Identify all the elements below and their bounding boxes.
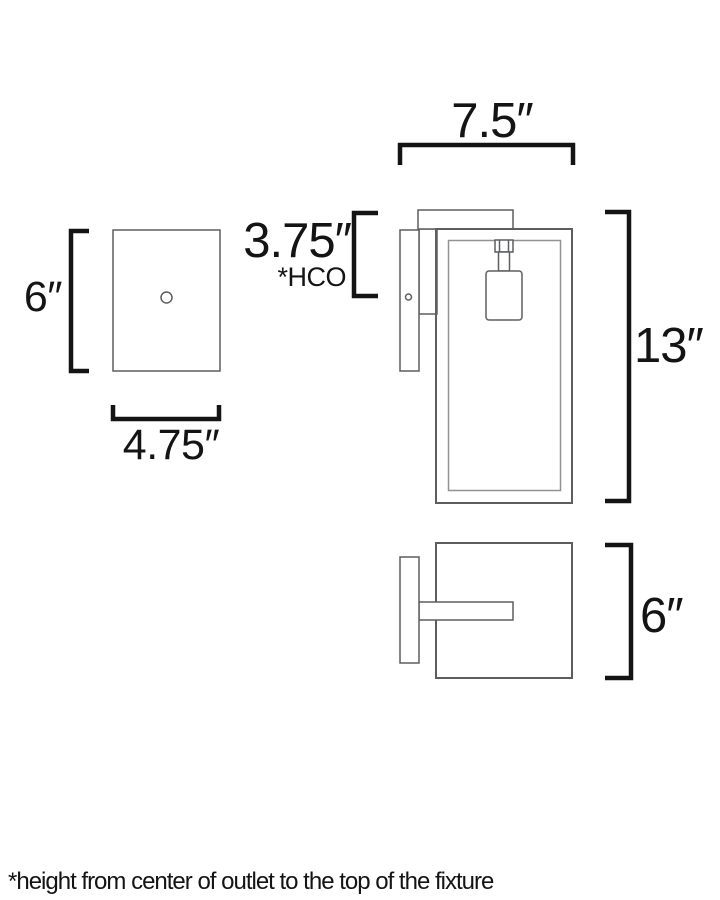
arm-top-bar: [418, 210, 513, 229]
side-height-bracket: [605, 212, 629, 501]
footnote: *height from center of outlet to the top…: [8, 868, 494, 895]
front-height-label: 6″: [24, 273, 62, 321]
sconce-dimension-diagram: 6″ 4.75″ 7.5″ 3.75″ *HCO 13″ 6″ *height …: [0, 0, 720, 900]
socket-nut: [495, 240, 513, 252]
page: { "diagram": { "footnote": "*height from…: [0, 0, 720, 900]
front-height-bracket: [71, 231, 89, 371]
front-width-label: 4.75″: [123, 421, 220, 469]
dimension-sheet: 6″ 4.75″ 7.5″ 3.75″ *HCO 13″ 6″ *height …: [0, 0, 720, 900]
side-width-label: 7.5″: [451, 94, 533, 148]
mounting-hole-icon: [161, 292, 172, 303]
top-depth-label: 6″: [640, 589, 683, 643]
lamp-socket: [486, 271, 522, 320]
side-hco-bracket: [354, 213, 378, 296]
side-view-fixture: [400, 210, 572, 503]
front-width-bracket: [113, 405, 219, 419]
wall-plate-top-view: [400, 557, 419, 663]
side-height-label: 13″: [634, 319, 704, 373]
arm-top-view: [419, 602, 513, 620]
side-hco-label: 3.75″: [243, 214, 351, 268]
arm-support: [419, 229, 437, 314]
top-view-fixture: [400, 543, 572, 678]
outlet-center-hole-icon: [406, 294, 412, 300]
side-width-bracket: [400, 145, 573, 165]
side-hco-note: *HCO: [277, 262, 346, 292]
front-view-backplate: [113, 230, 220, 371]
top-depth-bracket: [605, 545, 631, 678]
socket-stem: [499, 252, 510, 271]
